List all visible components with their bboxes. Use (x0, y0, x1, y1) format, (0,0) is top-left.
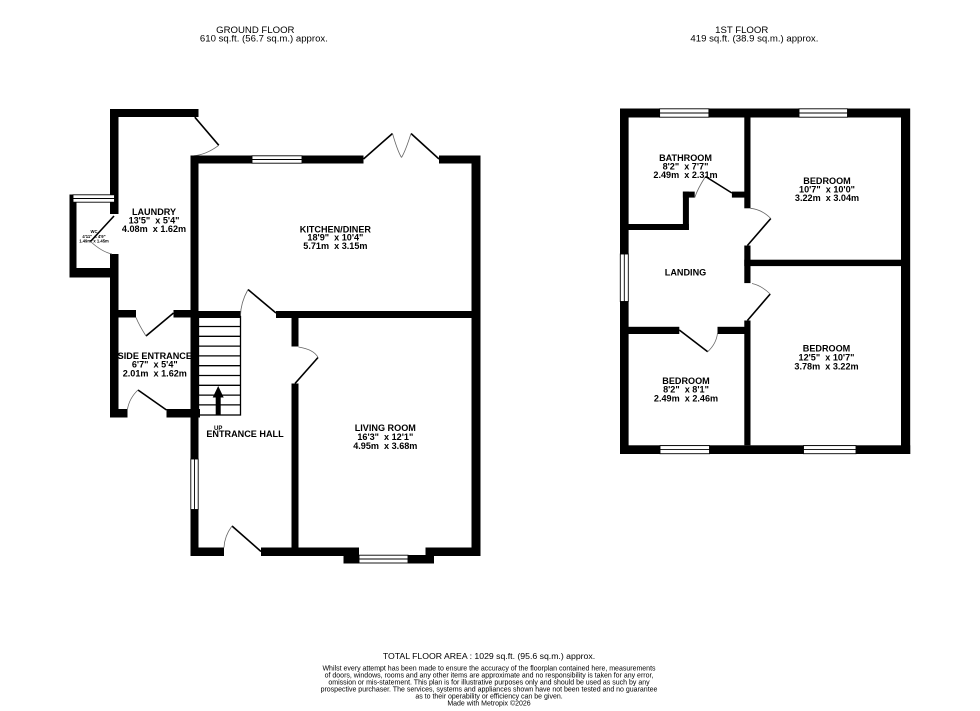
svg-text:omission or mis-statement. Thi: omission or mis-statement. This plan is … (328, 679, 650, 686)
svg-text:2.49m x 2.31m: 2.49m x 2.31m (653, 170, 717, 180)
svg-text:4.08m x 1.62m: 4.08m x 1.62m (122, 224, 186, 234)
svg-text:5.71m x 3.15m: 5.71m x 3.15m (303, 241, 367, 251)
svg-text:2.49m x 2.46m: 2.49m x 2.46m (654, 393, 718, 403)
svg-text:Made with Metropix ©2026: Made with Metropix ©2026 (447, 700, 530, 708)
svg-text:of doors, windows, rooms and a: of doors, windows, rooms and any other i… (325, 672, 654, 679)
svg-text:Whilst every attempt has been: Whilst every attempt has been made to en… (322, 665, 656, 672)
svg-text:as to their operability or eff: as to their operability or efficiency ca… (415, 693, 562, 700)
svg-text:419 sq.ft. (38.9 sq.m.) approx: 419 sq.ft. (38.9 sq.m.) approx. (690, 34, 818, 45)
svg-text:prospective purchaser. The ser: prospective purchaser. The services, sys… (321, 686, 658, 693)
svg-text:610 sq.ft. (56.7 sq.m.) approx: 610 sq.ft. (56.7 sq.m.) approx. (200, 34, 328, 45)
svg-text:3.22m x 3.04m: 3.22m x 3.04m (795, 193, 859, 203)
svg-text:4.95m x 3.68m: 4.95m x 3.68m (353, 441, 417, 451)
svg-text:TOTAL FLOOR AREA : 1029 sq.ft.: TOTAL FLOOR AREA : 1029 sq.ft. (95.6 sq.… (383, 651, 595, 661)
svg-text:LANDING: LANDING (665, 268, 706, 278)
svg-text:2.01m x 1.62m: 2.01m x 1.62m (123, 368, 187, 378)
svg-text:3.78m x 3.22m: 3.78m x 3.22m (794, 361, 858, 371)
svg-text:1.49m x 1.45m: 1.49m x 1.45m (79, 238, 109, 243)
svg-text:ENTRANCE HALL: ENTRANCE HALL (206, 429, 284, 439)
